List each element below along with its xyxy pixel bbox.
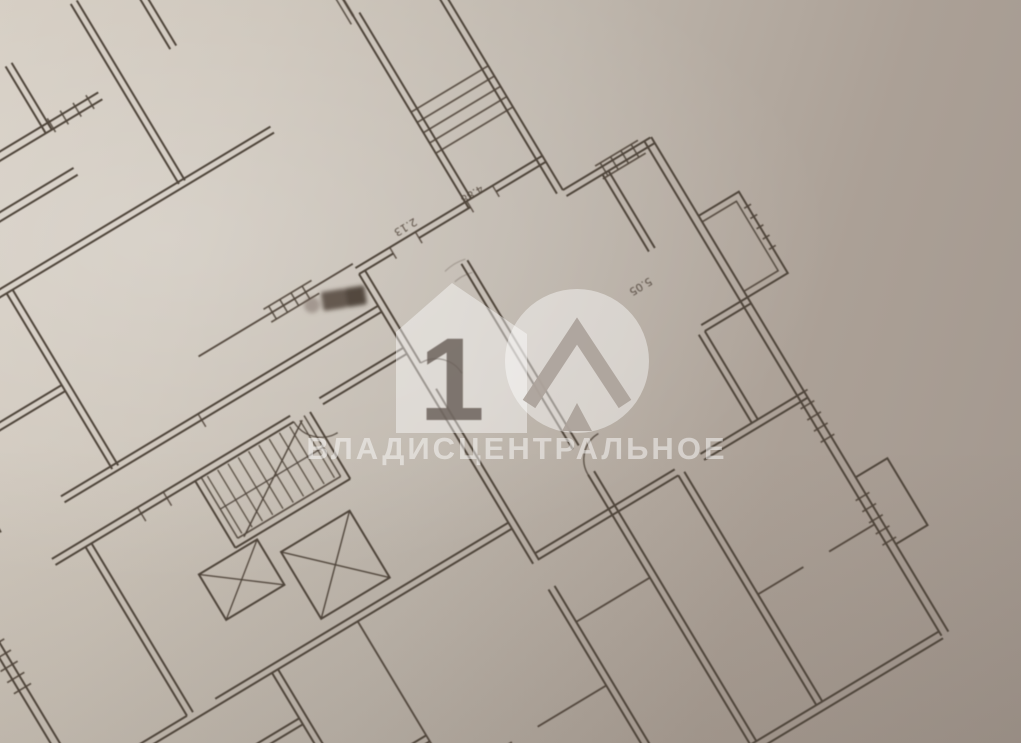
balcony-bay: [699, 192, 788, 298]
balcony-rail-lines: [0, 0, 261, 563]
balcony-bay: [856, 458, 928, 544]
top-right-wall: [561, 134, 656, 199]
upper-hall-wall: [355, 156, 549, 279]
redaction-mark: [304, 285, 367, 313]
window-hatch: [697, 204, 936, 545]
window-hatch: [595, 140, 646, 179]
dimension-label: 2.13: [392, 215, 420, 239]
upper-left-rooms: [0, 127, 380, 685]
entrance: [300, 0, 563, 240]
watermark-brand-text: ВЛАДИСЦЕНТРАЛЬНОЕ: [306, 431, 727, 466]
right-outer-wall: [641, 111, 992, 638]
watermark-number: 1: [419, 314, 485, 446]
window-hatch: [47, 95, 94, 132]
lower-left-rooms: [0, 193, 943, 743]
elevator-shaft-left: [199, 539, 285, 619]
floor-plan-photo: 2.13 4.88 5.05 1 ВЛАДИСЦЕНТРАЛЬНОЕ: [0, 0, 1021, 743]
left-outer-wall: [0, 382, 249, 743]
floor-plan-svg: 2.13 4.88 5.05 1 ВЛАДИСЦЕНТРАЛЬНОЕ: [0, 0, 1021, 743]
dimension-label: 4.88: [458, 182, 486, 206]
entrance-steps: [411, 66, 513, 153]
dimension-label: 5.05: [627, 274, 655, 298]
